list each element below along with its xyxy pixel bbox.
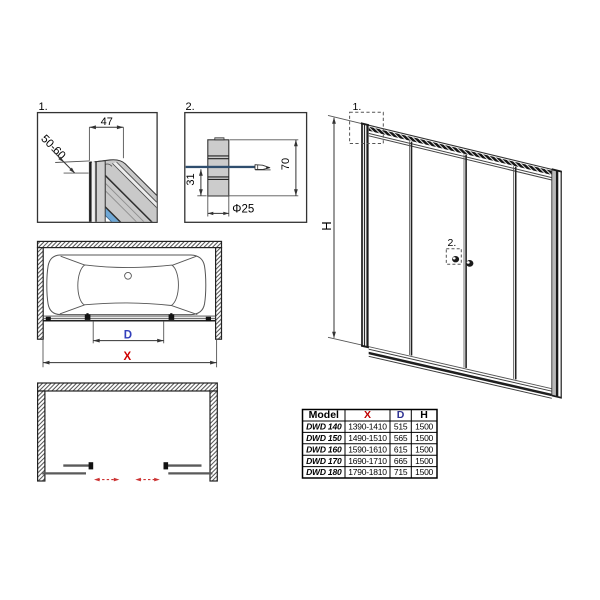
svg-text:Φ25: Φ25 <box>232 203 254 215</box>
svg-text:715: 715 <box>394 467 408 477</box>
svg-text:2.: 2. <box>186 101 195 113</box>
svg-text:1690-1710: 1690-1710 <box>348 456 387 466</box>
svg-text:1590-1610: 1590-1610 <box>348 444 387 454</box>
svg-text:DWD 170: DWD 170 <box>306 456 342 466</box>
svg-text:D: D <box>124 329 132 341</box>
svg-text:1.: 1. <box>39 101 48 113</box>
svg-text:DWD 140: DWD 140 <box>306 422 342 432</box>
svg-text:H: H <box>420 409 428 421</box>
svg-text:H: H <box>319 221 334 230</box>
svg-text:31: 31 <box>185 173 197 185</box>
svg-text:70: 70 <box>280 158 292 170</box>
svg-text:665: 665 <box>394 456 408 466</box>
svg-text:1500: 1500 <box>415 467 433 477</box>
svg-text:1.: 1. <box>353 101 362 113</box>
svg-text:565: 565 <box>394 433 408 443</box>
svg-text:DWD 160: DWD 160 <box>306 444 342 454</box>
svg-text:615: 615 <box>394 444 408 454</box>
svg-text:1790-1810: 1790-1810 <box>348 467 387 477</box>
svg-text:1390-1410: 1390-1410 <box>348 422 387 432</box>
svg-text:DWD 180: DWD 180 <box>306 467 342 477</box>
svg-text:DWD 150: DWD 150 <box>306 433 342 443</box>
svg-text:1500: 1500 <box>415 444 433 454</box>
svg-text:1500: 1500 <box>415 456 433 466</box>
svg-text:X: X <box>123 351 131 363</box>
svg-text:1490-1510: 1490-1510 <box>348 433 387 443</box>
svg-text:515: 515 <box>394 422 408 432</box>
svg-text:D: D <box>397 409 405 421</box>
svg-text:Model: Model <box>309 409 339 421</box>
svg-text:47: 47 <box>101 116 113 128</box>
svg-text:2.: 2. <box>448 237 457 249</box>
svg-text:1500: 1500 <box>415 422 433 432</box>
svg-text:1500: 1500 <box>415 433 433 443</box>
svg-text:X: X <box>364 409 371 421</box>
